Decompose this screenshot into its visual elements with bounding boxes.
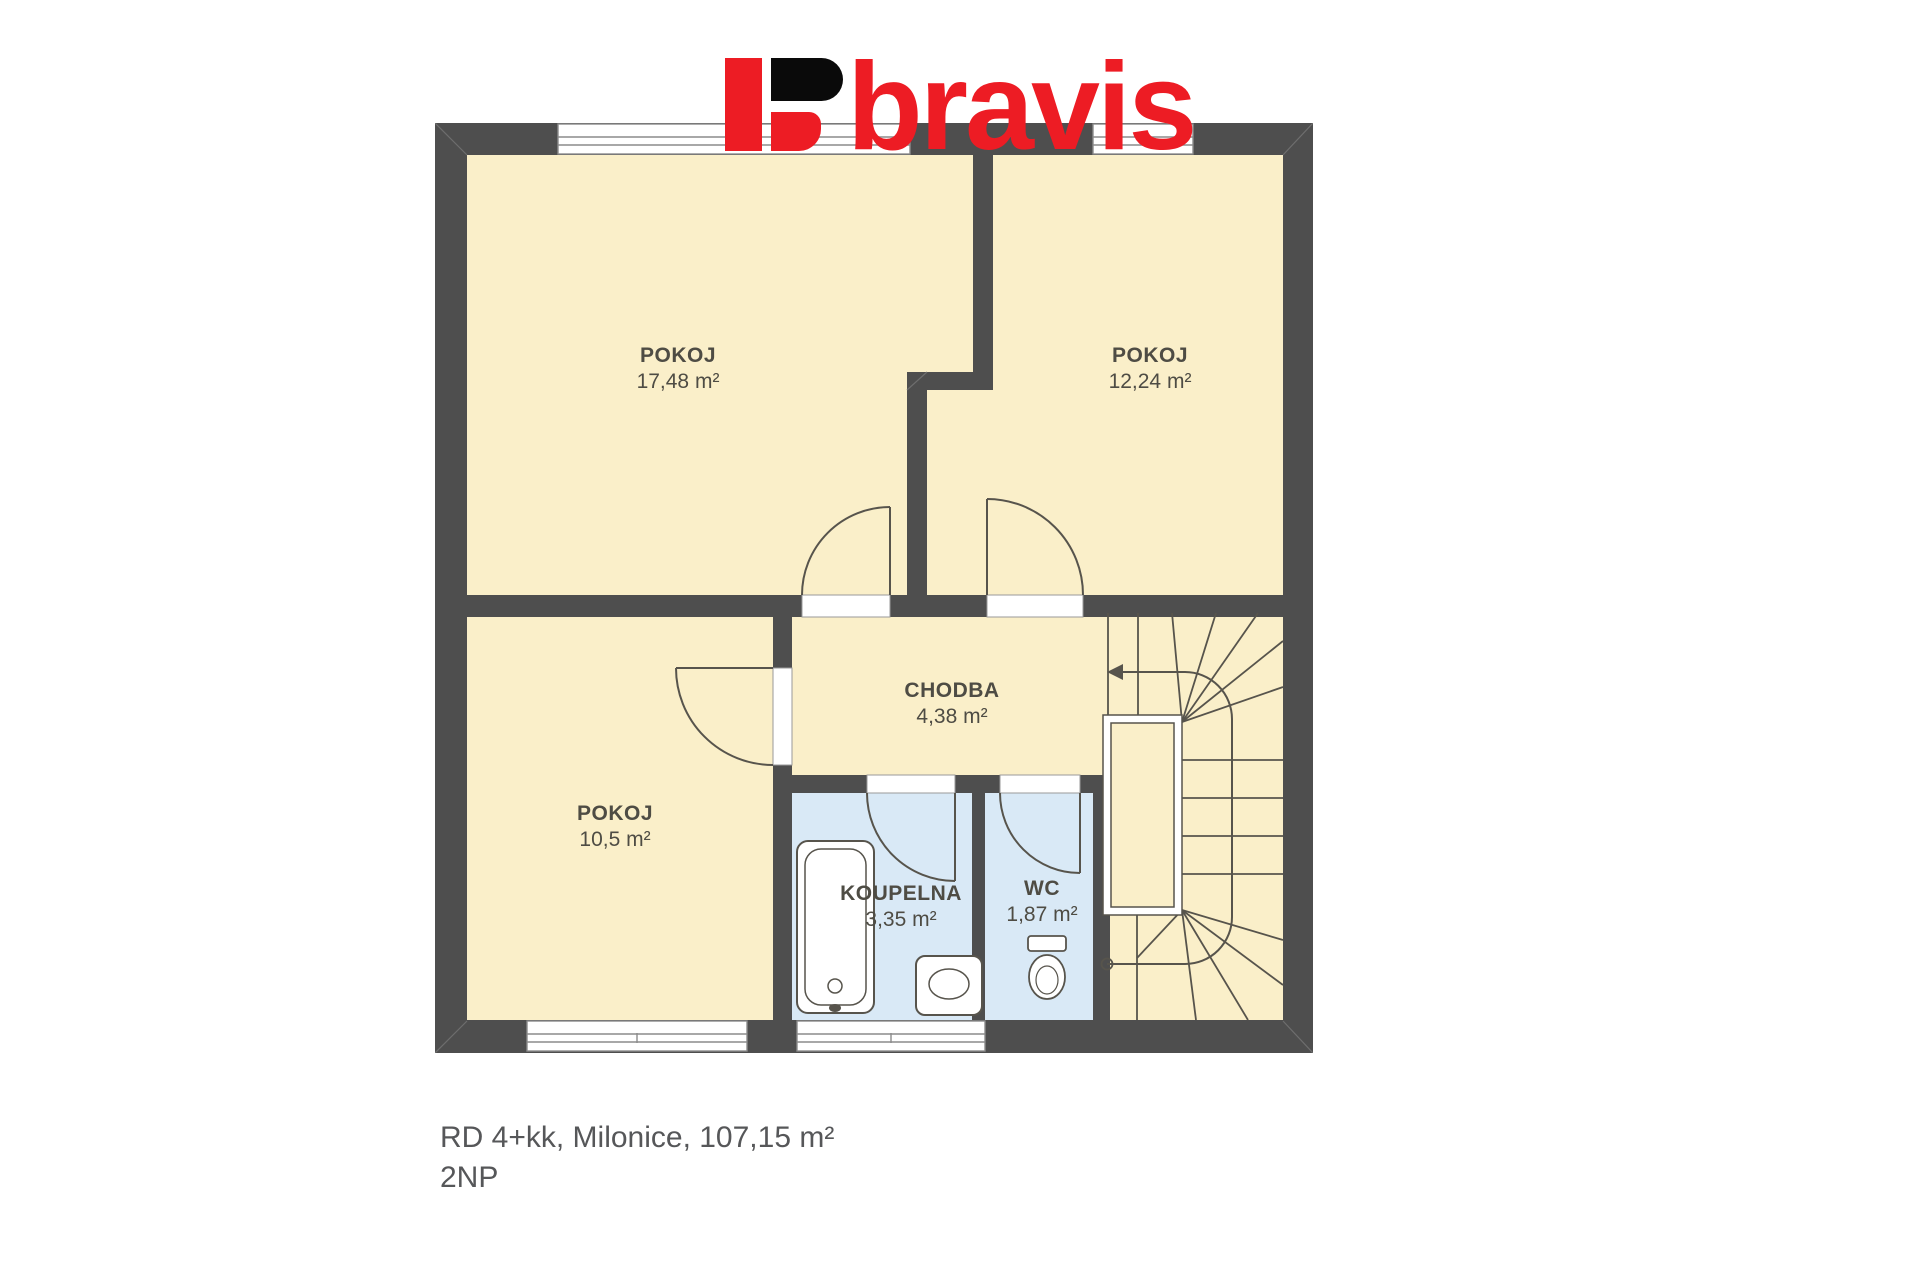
room-area: 1,87 m²	[932, 902, 1152, 927]
room-area: 12,24 m²	[1040, 369, 1260, 394]
caption-line-1: RD 4+kk, Milonice, 107,15 m²	[440, 1118, 834, 1158]
room-name: POKOJ	[505, 801, 725, 827]
logo-b-bowl-top	[771, 58, 843, 101]
caption-line-2: 2NP	[440, 1158, 834, 1198]
window-bottom-left	[527, 1021, 747, 1051]
room-name: POKOJ	[568, 343, 788, 369]
room-label-chodba: CHODBA 4,38 m²	[842, 678, 1062, 729]
page: POKOJ 17,48 m² POKOJ 12,24 m² CHODBA 4,3…	[0, 0, 1920, 1276]
logo-b-bowl-bottom	[771, 112, 821, 151]
toilet-icon	[1028, 936, 1066, 999]
room-label-wc: WC 1,87 m²	[932, 876, 1152, 927]
room-area: 17,48 m²	[568, 369, 788, 394]
window-bottom-bath	[797, 1021, 985, 1051]
sink-icon	[916, 956, 982, 1015]
logo-b-stem	[725, 58, 762, 151]
bravis-logo: bravis	[725, 58, 1225, 152]
caption: RD 4+kk, Milonice, 107,15 m² 2NP	[440, 1118, 834, 1198]
room-area: 10,5 m²	[505, 827, 725, 852]
room-label-pokoj-2: POKOJ 12,24 m²	[1040, 343, 1260, 394]
logo-text: bravis	[847, 60, 1194, 154]
room-area: 4,38 m²	[842, 704, 1062, 729]
room-label-pokoj-3: POKOJ 10,5 m²	[505, 801, 725, 852]
floor-plan: POKOJ 17,48 m² POKOJ 12,24 m² CHODBA 4,3…	[0, 0, 1920, 1276]
room-label-pokoj-1: POKOJ 17,48 m²	[568, 343, 788, 394]
room-name: WC	[932, 876, 1152, 902]
room-name: POKOJ	[1040, 343, 1260, 369]
room-name: CHODBA	[842, 678, 1062, 704]
